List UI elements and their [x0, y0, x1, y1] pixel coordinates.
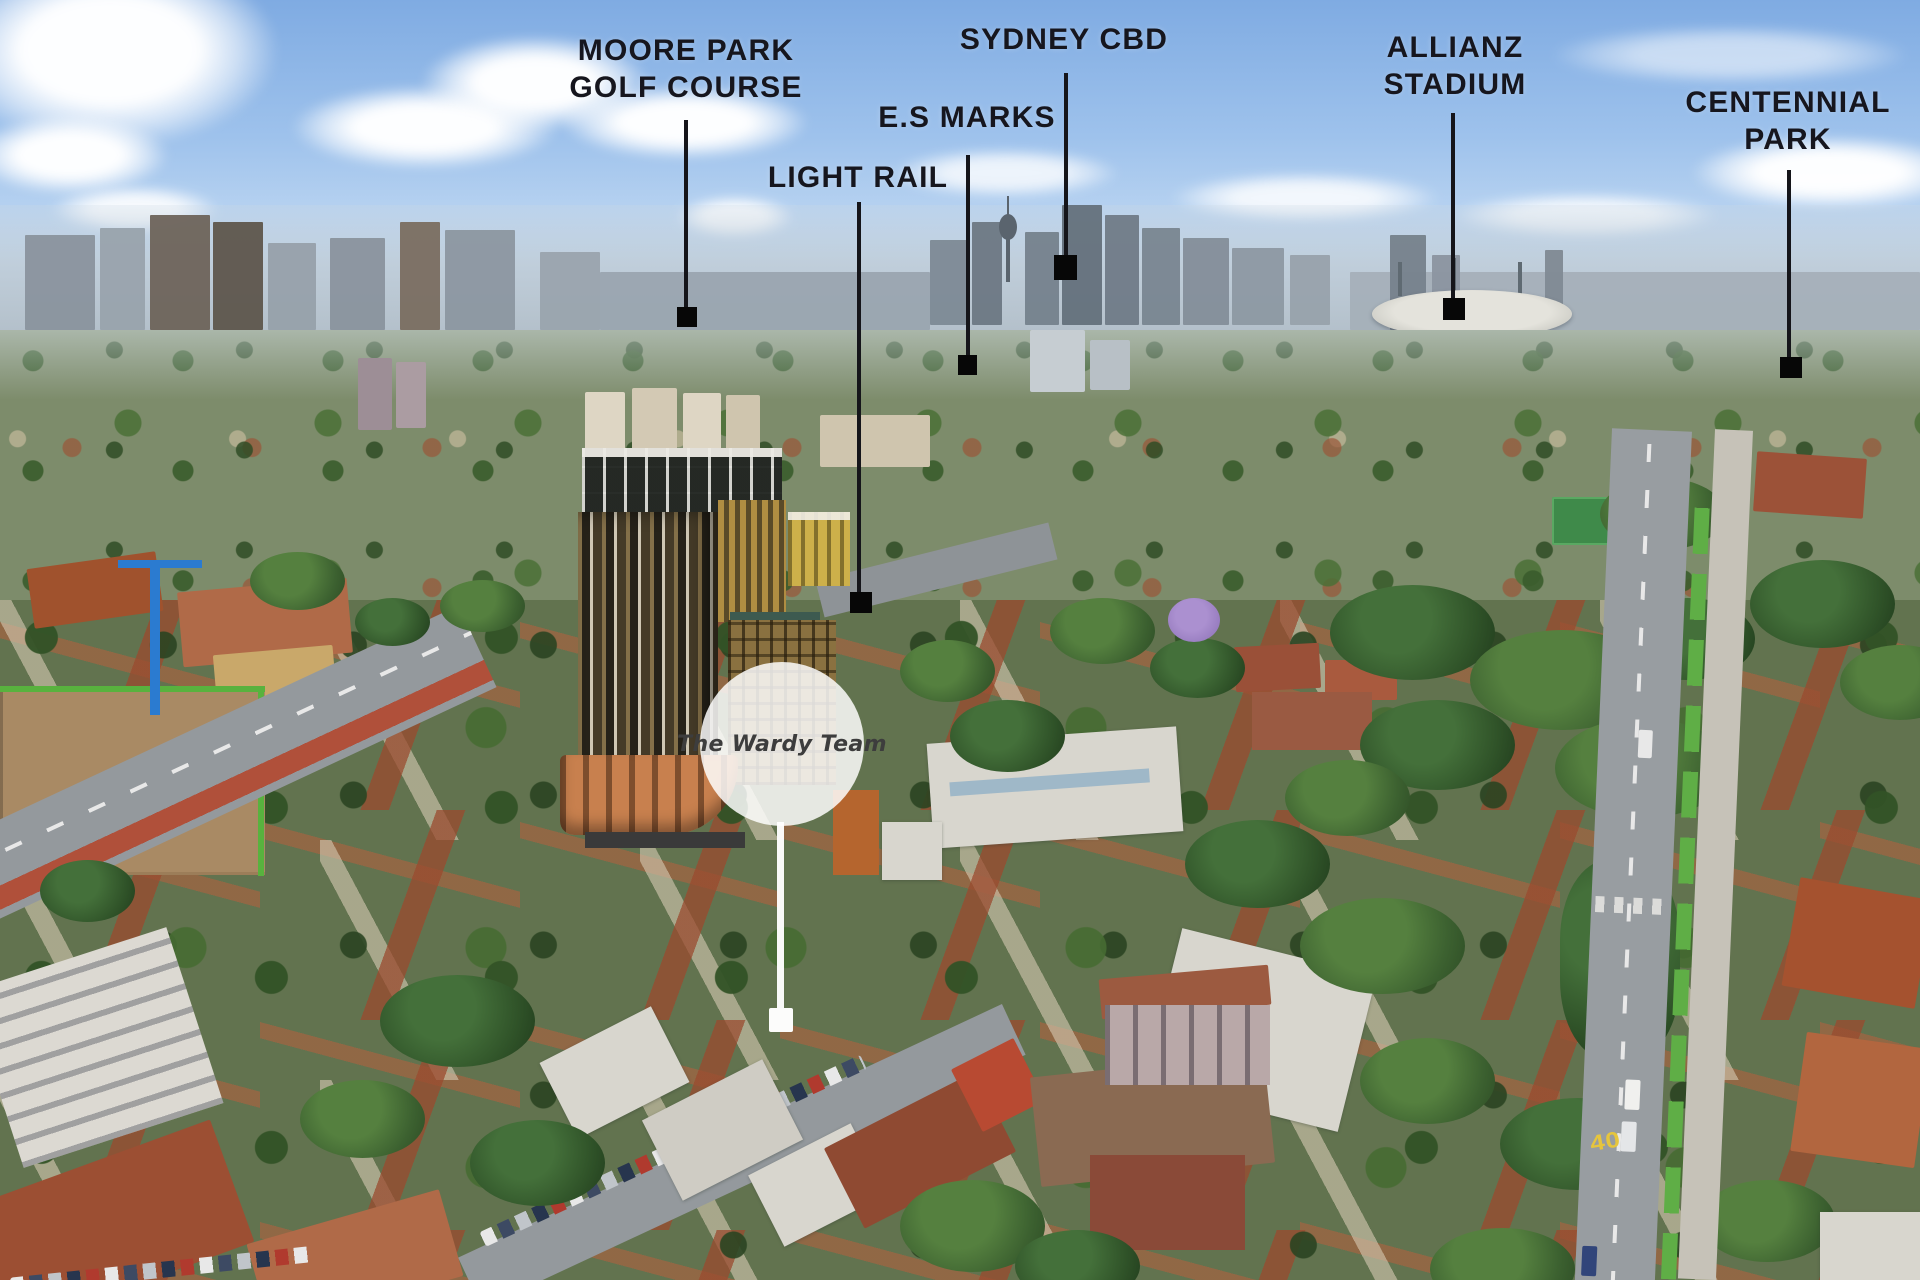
callout-line-light-rail	[857, 202, 861, 592]
tree	[355, 598, 430, 646]
apartment-slab	[726, 395, 760, 450]
cloud	[1550, 25, 1910, 85]
distant-tower	[150, 215, 210, 330]
label-sydney-cbd: SYDNEY CBD	[960, 21, 1168, 58]
tree	[1750, 560, 1895, 648]
yellow-apartment-building	[788, 512, 850, 586]
tree	[1185, 820, 1330, 908]
car	[1581, 1246, 1597, 1277]
label-light-rail: LIGHT RAIL	[768, 159, 948, 196]
walkup-apartment	[1105, 1005, 1270, 1085]
label-allianz-stadium: ALLIANZ STADIUM	[1384, 29, 1527, 103]
map-marker-light-rail	[850, 592, 872, 613]
car	[1621, 1121, 1637, 1152]
distant-tower	[268, 243, 316, 330]
tree	[1360, 1038, 1495, 1124]
tree	[1300, 898, 1465, 994]
cbd-tower	[972, 222, 1002, 325]
tree	[1050, 598, 1155, 664]
car	[1624, 1079, 1640, 1110]
agency-badge: The Wardy Team	[700, 662, 864, 826]
tree	[900, 640, 995, 702]
tree	[300, 1080, 425, 1158]
tower-base-shadow	[585, 832, 745, 848]
pedestrian-crossing	[1595, 896, 1668, 915]
tree	[250, 552, 345, 610]
apartment-slab	[683, 393, 721, 451]
house-roof	[1820, 1212, 1920, 1280]
jacaranda-tree	[1168, 598, 1220, 642]
aerial-photo: 40 MOORE PARK GOLF COURSE SYDNEY CBD E.S…	[0, 0, 1920, 1280]
distant-tower	[330, 238, 385, 330]
sydney-tower-stem	[1006, 236, 1010, 282]
cbd-tower	[1142, 228, 1180, 325]
apartment-slab	[585, 392, 625, 452]
label-centennial-park: CENTENNIAL PARK	[1685, 84, 1890, 158]
distant-tower	[540, 252, 600, 330]
brick-apartment	[1252, 692, 1372, 750]
badge-stem	[777, 822, 784, 1012]
property-marker	[769, 1008, 793, 1032]
callout-line-sydney-cbd	[1064, 73, 1068, 255]
callout-line-moore-park	[684, 120, 688, 307]
tree	[1700, 1180, 1835, 1262]
house-roof	[1790, 1032, 1920, 1168]
apartment-slab	[1090, 340, 1130, 390]
apartment-slab	[396, 362, 426, 428]
tree	[380, 975, 535, 1067]
distant-tower	[445, 230, 515, 330]
cbd-tower	[1232, 248, 1284, 325]
skylight-strip	[949, 768, 1149, 796]
house-roof	[1753, 451, 1867, 519]
map-marker-es-marks	[958, 355, 977, 375]
distant-tower	[100, 228, 145, 330]
house-roof	[882, 822, 942, 880]
tree	[1285, 760, 1410, 836]
distant-tower	[25, 235, 95, 330]
tree	[1330, 585, 1495, 680]
house-roof	[1781, 877, 1920, 1009]
tower-gold-wing	[718, 500, 786, 622]
tree	[470, 1120, 605, 1206]
speed-limit-road-marking: 40	[1588, 1126, 1623, 1157]
distant-low-buildings	[600, 272, 930, 330]
callout-line-centennial	[1787, 170, 1791, 357]
apartment-slab	[632, 388, 677, 454]
cbd-tower	[1290, 255, 1330, 325]
tree	[440, 580, 525, 632]
label-es-marks: E.S MARKS	[878, 99, 1056, 136]
apartment-slab	[358, 358, 392, 430]
crane-mast	[150, 565, 160, 715]
map-marker-sydney-cbd	[1054, 255, 1077, 280]
apartment-roof	[1234, 643, 1321, 692]
tree	[950, 700, 1065, 772]
distant-tower	[213, 222, 263, 330]
label-moore-park-golf-course: MOORE PARK GOLF COURSE	[569, 32, 802, 106]
brick-apartment	[833, 790, 879, 875]
cbd-tower	[1183, 238, 1229, 325]
car	[1638, 730, 1653, 759]
agency-badge-text: The Wardy Team	[677, 732, 887, 757]
cbd-tower	[930, 240, 968, 325]
callout-line-allianz	[1451, 113, 1455, 298]
construction-fence	[0, 686, 265, 692]
stadium-light-tower	[1398, 262, 1402, 296]
distant-tower	[400, 222, 440, 330]
tree	[1150, 638, 1245, 698]
apartment-slab	[820, 415, 930, 467]
cbd-tower	[1105, 215, 1139, 325]
map-marker-allianz	[1443, 298, 1465, 320]
apartment-slab	[1030, 330, 1085, 392]
tree	[40, 860, 135, 922]
map-marker-moore-park	[677, 307, 697, 327]
callout-line-es-marks	[966, 155, 970, 355]
stadium-light-tower	[1518, 262, 1522, 296]
crane-jib	[118, 560, 202, 568]
map-marker-centennial	[1780, 357, 1802, 378]
